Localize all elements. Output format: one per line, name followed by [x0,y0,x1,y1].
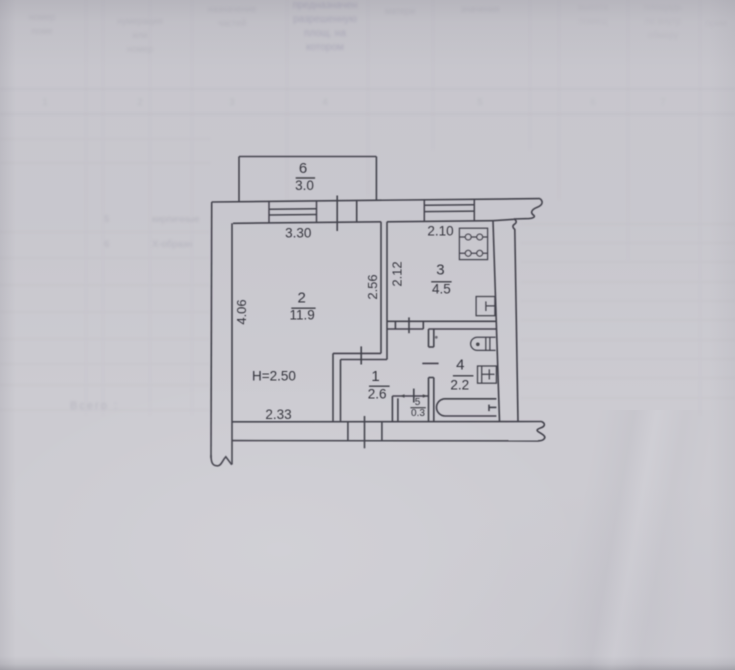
svg-text:2.2: 2.2 [450,378,469,393]
svg-text:2.10: 2.10 [427,223,453,238]
svg-text:11.9: 11.9 [290,308,315,323]
svg-text:3.0: 3.0 [295,178,314,193]
svg-text:3.30: 3.30 [285,225,311,240]
svg-text:4.06: 4.06 [234,299,249,324]
svg-text:6: 6 [299,160,307,177]
svg-text:1: 1 [371,368,379,385]
svg-text:5: 5 [415,397,421,408]
svg-text:2.33: 2.33 [265,407,291,422]
svg-text:2.56: 2.56 [365,274,380,299]
svg-text:2: 2 [298,290,306,307]
svg-text:4.5: 4.5 [432,282,451,297]
svg-text:0.3: 0.3 [411,408,425,419]
svg-text:2.6: 2.6 [368,387,387,402]
svg-text:2.12: 2.12 [390,261,405,286]
svg-text:4: 4 [456,357,464,374]
svg-text:3: 3 [436,262,444,279]
svg-text:H=2.50: H=2.50 [252,369,296,384]
